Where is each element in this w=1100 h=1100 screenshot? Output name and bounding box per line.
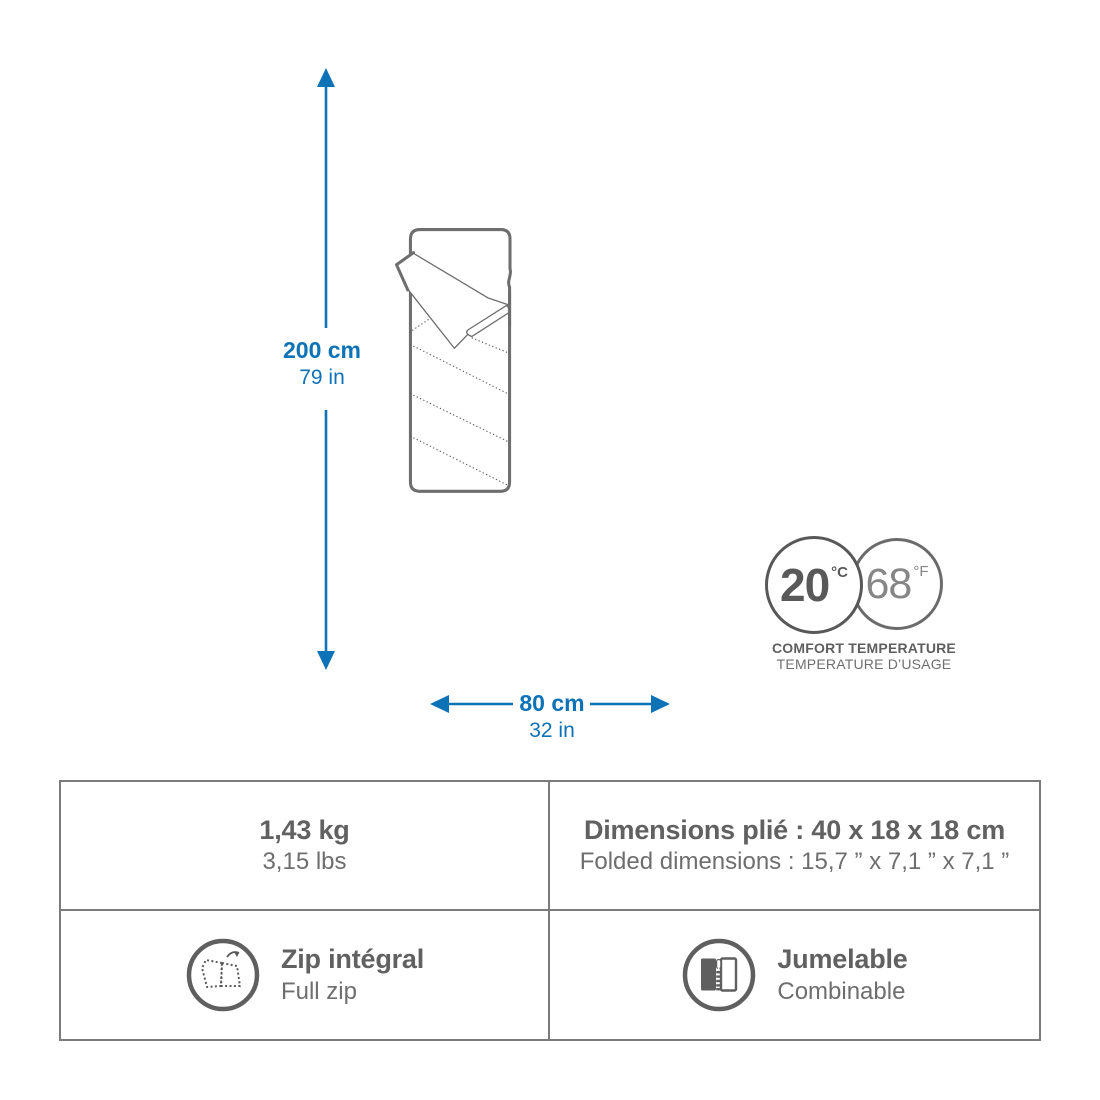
fahrenheit-circle: 68 °F [851,538,943,630]
folded-dimensions-imperial: Folded dimensions : 15,7 ” x 7,1 ” x 7,1… [580,847,1010,878]
weight-metric: 1,43 kg [259,813,349,848]
full-zip-label-en: Full zip [281,977,424,1008]
height-imperial: 79 in [222,365,422,391]
comfort-temperature-line1: COMFORT TEMPERATURE [740,640,988,656]
height-dimension-label: 200 cm 79 in [222,336,422,391]
full-zip-cell: Zip intégral Full zip [61,911,550,1040]
combinable-cell: Jumelable Combinable [550,911,1039,1040]
width-imperial: 32 in [452,718,652,744]
sleeping-bag-illustration [390,55,690,695]
width-dimension-label: 80 cm 32 in [452,689,652,744]
celsius-circle: 20 °C [765,536,863,634]
folded-dimensions-cell: Dimensions plié : 40 x 18 x 18 cm Folded… [550,782,1039,911]
weight-imperial: 3,15 lbs [259,847,349,878]
combinable-label-fr: Jumelable [777,942,907,977]
comfort-temperature-label: COMFORT TEMPERATURE TEMPERATURE D’USAGE [740,640,988,672]
fahrenheit-value: 68 [865,560,911,609]
product-spec-infographic: 200 cm 79 in 80 cm 32 in 68 °F 20 °C COM… [0,0,1100,1100]
fahrenheit-unit: °F [913,563,928,580]
twin-combinable-zip-icon [681,937,757,1013]
celsius-value: 20 [780,558,829,612]
width-metric: 80 cm [452,689,652,718]
celsius-unit: °C [831,564,848,581]
height-metric: 200 cm [222,336,422,365]
full-zip-label-fr: Zip intégral [281,942,424,977]
full-zip-open-icon [185,937,261,1013]
comfort-temperature-line2: TEMPERATURE D’USAGE [740,656,988,672]
combinable-label-en: Combinable [777,977,907,1008]
folded-dimensions-metric: Dimensions plié : 40 x 18 x 18 cm [580,813,1010,848]
spec-table: 1,43 kg 3,15 lbs Dimensions plié : 40 x … [59,780,1041,1041]
weight-cell: 1,43 kg 3,15 lbs [61,782,550,911]
